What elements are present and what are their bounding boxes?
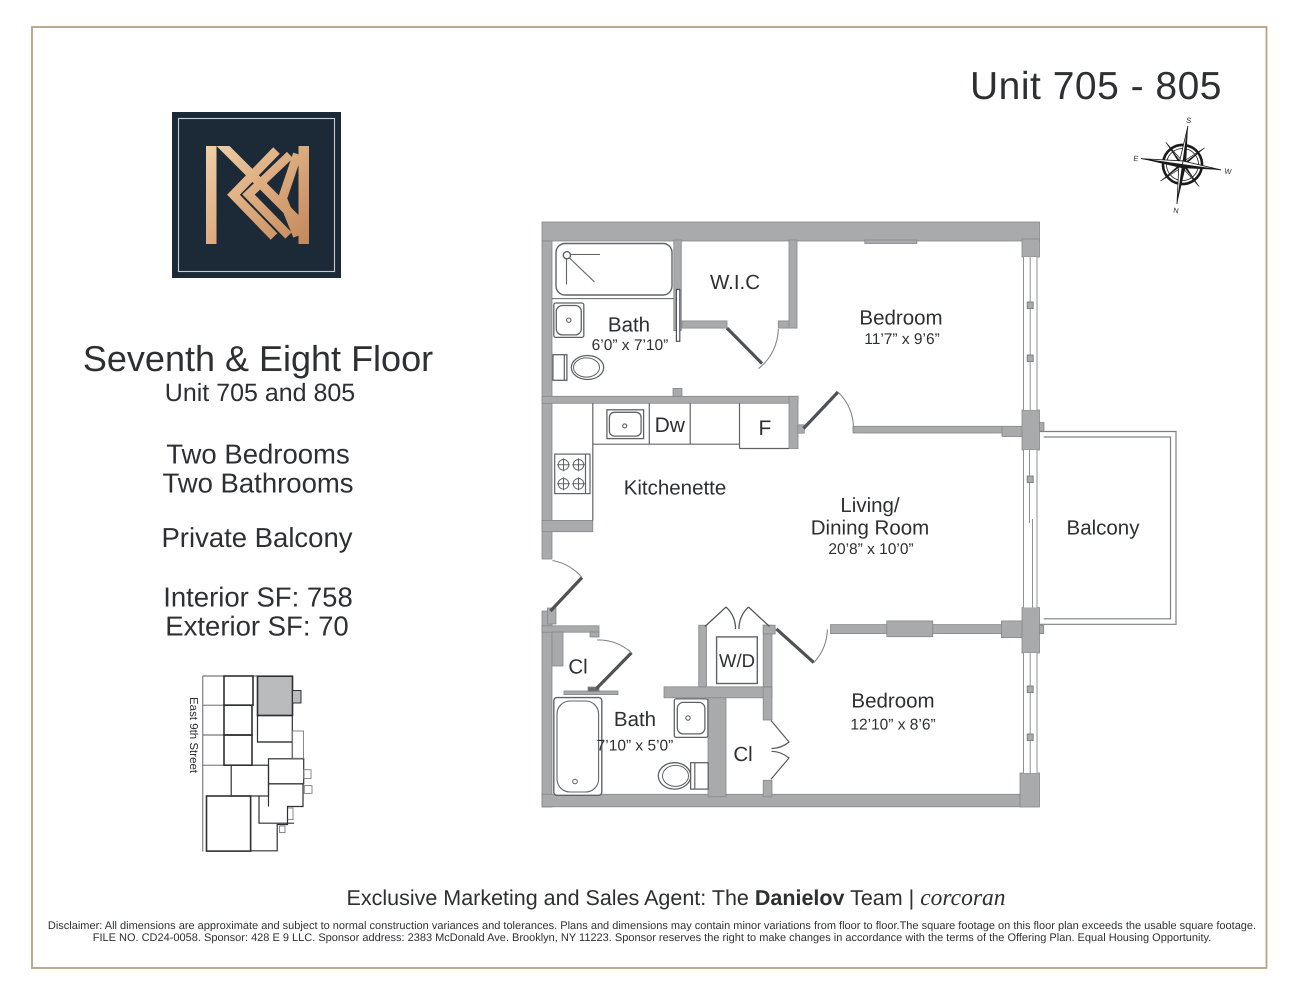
- svg-text:Exterior SF: 70: Exterior SF: 70: [165, 611, 348, 642]
- svg-text:W: W: [1224, 166, 1233, 176]
- svg-text:Cl: Cl: [733, 743, 752, 766]
- svg-text:Dining Room: Dining Room: [811, 517, 930, 540]
- svg-text:Disclaimer: All dimensions are: Disclaimer: All dimensions are approxima…: [48, 920, 1256, 932]
- svg-text:Bedroom: Bedroom: [859, 307, 942, 330]
- svg-text:Seventh & Eight Floor: Seventh & Eight Floor: [83, 338, 433, 379]
- svg-text:Two Bedrooms: Two Bedrooms: [166, 439, 349, 470]
- svg-text:Bath: Bath: [608, 314, 650, 337]
- svg-text:Bedroom: Bedroom: [851, 690, 934, 713]
- svg-text:Living/: Living/: [840, 494, 900, 517]
- svg-text:Unit 705 - 805: Unit 705 - 805: [970, 65, 1222, 108]
- svg-text:Kitchenette: Kitchenette: [624, 477, 727, 500]
- svg-text:Exclusive Marketing and Sales: Exclusive Marketing and Sales Agent: The…: [347, 885, 1006, 911]
- svg-text:Bath: Bath: [614, 708, 656, 731]
- svg-text:11’7” x 9’6”: 11’7” x 9’6”: [864, 331, 940, 348]
- svg-text:FILE NO. CD24-0058. Sponsor: 4: FILE NO. CD24-0058. Sponsor: 428 E 9 LLC…: [93, 932, 1212, 944]
- svg-text:12’10” x 8’6”: 12’10” x 8’6”: [850, 717, 935, 734]
- svg-text:7’10” x 5’0”: 7’10” x 5’0”: [597, 738, 674, 755]
- svg-text:Cl: Cl: [568, 656, 587, 679]
- svg-text:Private Balcony: Private Balcony: [161, 522, 352, 553]
- svg-text:E: E: [1133, 154, 1139, 164]
- svg-text:Interior SF: 758: Interior SF: 758: [163, 582, 353, 613]
- svg-text:F: F: [758, 417, 771, 440]
- svg-text:Dw: Dw: [655, 414, 686, 437]
- svg-text:W.I.C: W.I.C: [710, 271, 760, 294]
- svg-text:20’8” x 10’0”: 20’8” x 10’0”: [828, 541, 913, 558]
- svg-text:Unit 705 and 805: Unit 705 and 805: [165, 379, 355, 407]
- svg-text:6’0” x 7’10”: 6’0” x 7’10”: [592, 337, 669, 354]
- svg-text:S: S: [1186, 116, 1192, 126]
- svg-text:Balcony: Balcony: [1067, 517, 1141, 540]
- svg-text:Two Bathrooms: Two Bathrooms: [162, 468, 353, 499]
- svg-text:N: N: [1173, 206, 1180, 216]
- svg-text:East 9th Street: East 9th Street: [187, 697, 199, 774]
- svg-text:W/D: W/D: [719, 650, 755, 671]
